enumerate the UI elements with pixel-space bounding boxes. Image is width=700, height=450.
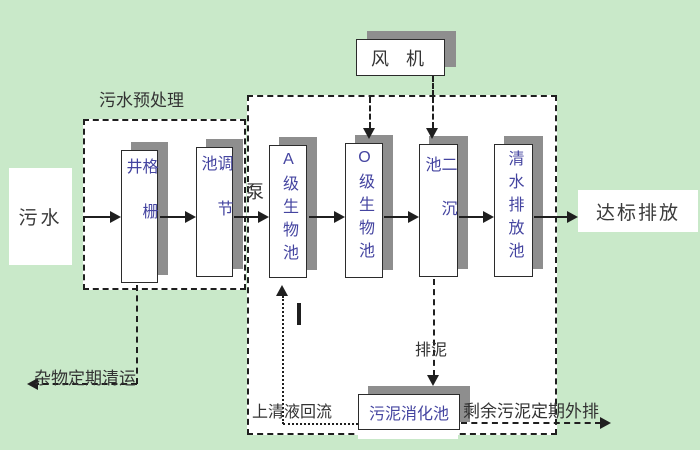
secondary-sedimentation-tank: 二沉池: [419, 144, 458, 277]
flow-arrowhead: [258, 211, 269, 223]
sludge-discharge-label: 排泥: [415, 336, 447, 360]
flow-arrow-line: [309, 216, 335, 218]
supernatant-return-arrowhead: [276, 285, 288, 296]
flow-arrow-line: [534, 216, 568, 218]
surplus-sludge-label: 剩余污泥定期外排: [463, 397, 599, 422]
flow-arrow-line: [234, 216, 259, 218]
blower-label: 风 机: [371, 45, 430, 71]
tank-a-biological: A级生物池: [269, 145, 307, 278]
grid-well-tank: 格栅井: [121, 150, 158, 283]
flow-arrowhead: [334, 211, 345, 223]
tank-a-label: A级生物池: [280, 146, 296, 267]
stray-tick-mark: [297, 303, 301, 325]
air-line-to-tank-o: [369, 97, 371, 128]
supernatant-return-line-horizontal: [283, 423, 358, 425]
clear-water-discharge-label: 清水排放池: [506, 145, 522, 265]
tank-o-label: O级生物池: [356, 144, 372, 265]
surplus-sludge-line: [461, 422, 601, 424]
flow-arrow-line: [84, 216, 111, 218]
flow-arrow-line: [160, 216, 185, 218]
outfall-box: 达标排放: [578, 190, 698, 232]
pump-label: 泵: [246, 178, 264, 204]
waste-removal-line-vertical: [136, 285, 138, 384]
air-arrowhead-1: [363, 128, 375, 139]
air-line-to-secondary: [432, 97, 434, 128]
waste-removal-label: 杂物定期清运: [34, 364, 136, 389]
flow-arrowhead: [110, 211, 121, 223]
outfall-label: 达标排放: [596, 198, 680, 225]
sludge-discharge-line: [433, 279, 435, 376]
pretreatment-zone-label: 污水预处理: [99, 86, 184, 111]
flow-arrow-line: [459, 216, 484, 218]
flow-arrowhead: [483, 211, 494, 223]
sludge-digestion-tank: 污泥消化池: [358, 394, 460, 430]
tank-o-biological: O级生物池: [345, 143, 383, 278]
influent-box: 污水: [9, 168, 72, 265]
regulating-tank: 调节池: [196, 147, 233, 277]
blower-stem-line: [432, 76, 434, 96]
air-arrowhead-2: [426, 128, 438, 139]
blower-box: 风 机: [356, 39, 445, 76]
regulating-tank-label: 调节池: [199, 148, 231, 276]
flow-arrowhead: [408, 211, 419, 223]
flow-arrowhead: [185, 211, 196, 223]
zone-border-gap: [358, 430, 458, 439]
sludge-digestion-label: 污泥消化池: [369, 400, 449, 424]
flow-arrowhead: [567, 211, 578, 223]
clear-water-discharge-tank: 清水排放池: [494, 144, 533, 277]
surplus-sludge-arrowhead: [600, 417, 611, 429]
sludge-discharge-arrowhead: [427, 375, 439, 386]
flow-arrow-line: [384, 216, 409, 218]
secondary-sedimentation-label: 二沉池: [423, 145, 455, 276]
influent-label: 污水: [18, 203, 62, 230]
supernatant-return-label: 上清液回流: [252, 398, 332, 422]
grid-well-label: 格栅井: [124, 151, 156, 282]
wastewater-treatment-flow-diagram: 风 机 格栅井 调节池 A级生物池 O级生物池 二沉池 清水排放池 污泥消化池 …: [0, 0, 700, 450]
